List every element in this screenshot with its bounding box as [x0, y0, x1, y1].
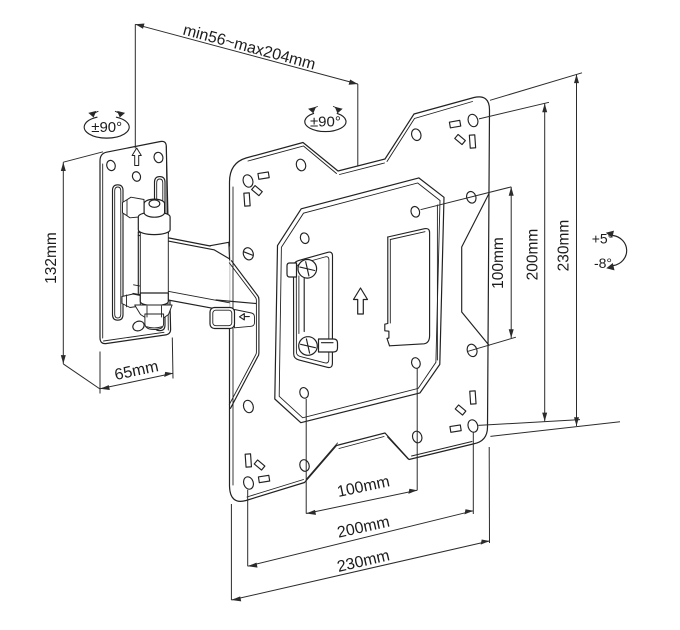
svg-text:±90°: ±90°: [310, 114, 341, 131]
svg-text:100mm: 100mm: [490, 237, 507, 289]
svg-text:200mm: 200mm: [525, 229, 542, 281]
svg-text:230mm: 230mm: [556, 220, 573, 272]
svg-text:±90°: ±90°: [91, 119, 122, 136]
svg-text:132mm: 132mm: [43, 232, 60, 284]
